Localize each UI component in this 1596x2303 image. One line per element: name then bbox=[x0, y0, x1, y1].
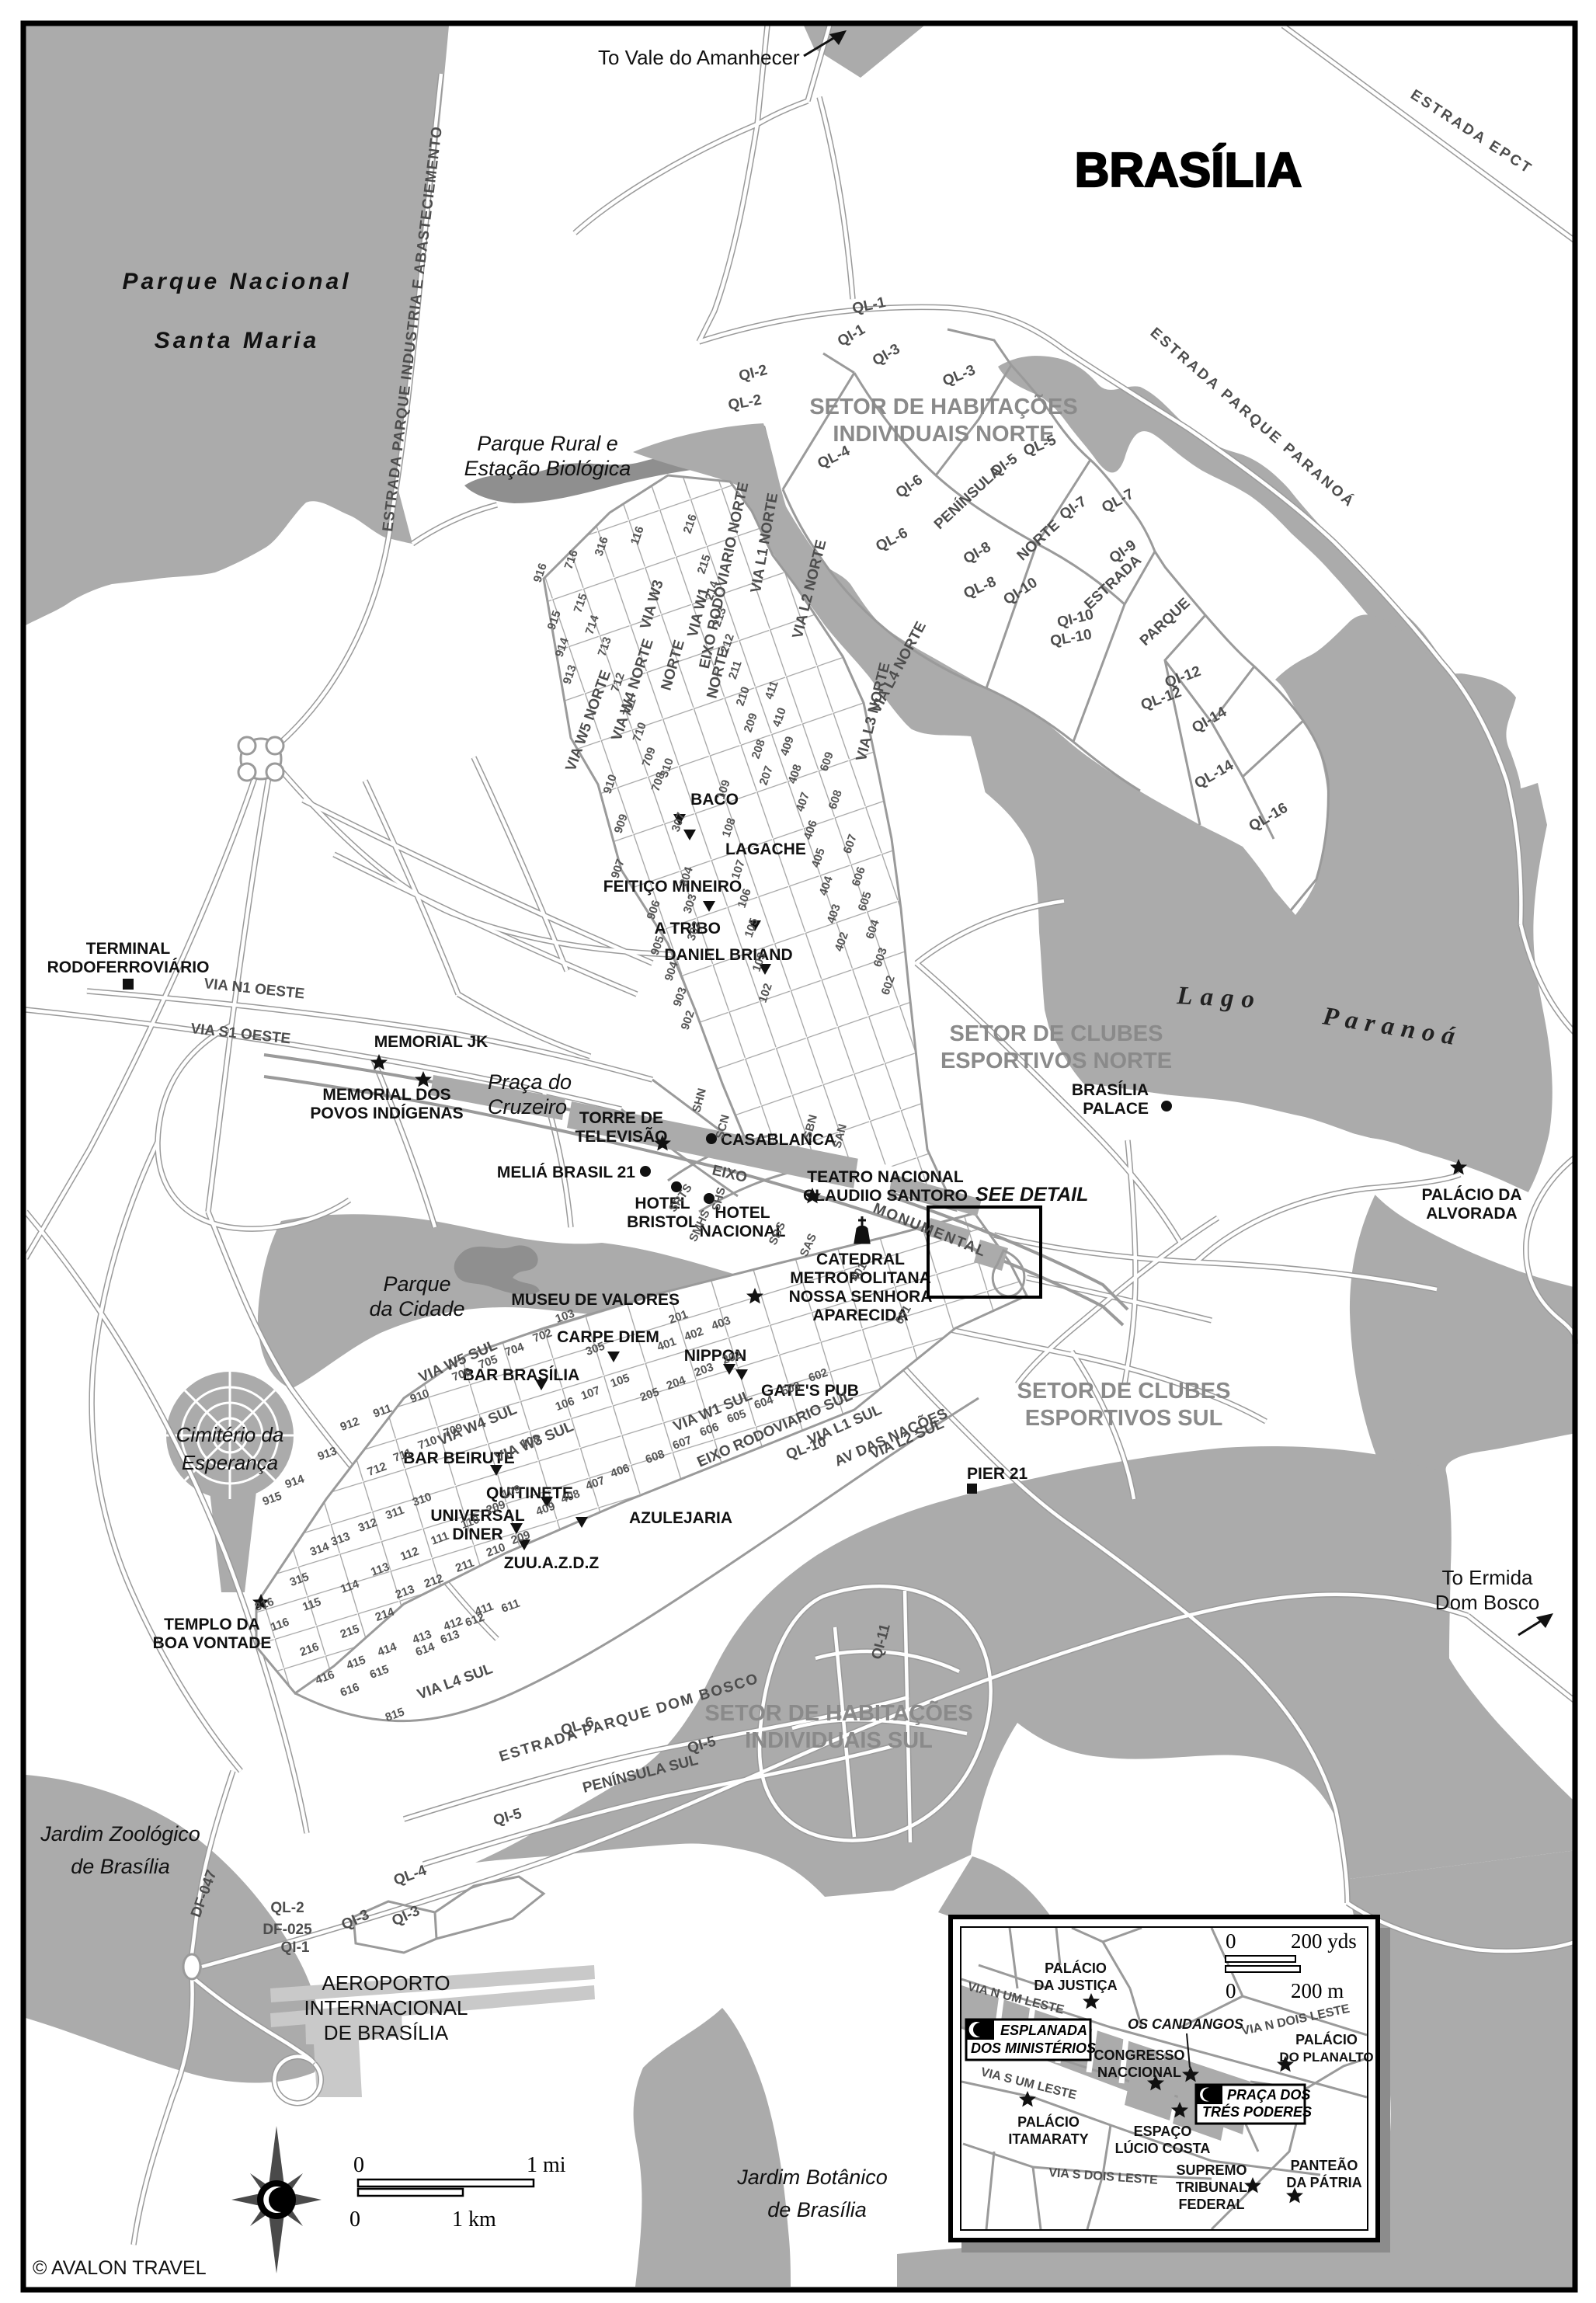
svg-text:BRASÍLIA: BRASÍLIA bbox=[1075, 144, 1302, 197]
svg-text:ESPORTIVOS NORTE: ESPORTIVOS NORTE bbox=[941, 1049, 1172, 1073]
svg-text:CLAUDIIO SANTORO: CLAUDIIO SANTORO bbox=[803, 1187, 968, 1205]
svg-text:QI-1: QI-1 bbox=[281, 1939, 310, 1956]
svg-text:0: 0 bbox=[349, 2207, 360, 2232]
svg-text:TERMINAL: TERMINAL bbox=[86, 940, 171, 958]
svg-text:SETOR DE HABITAÇÕES: SETOR DE HABITAÇÕES bbox=[704, 1699, 972, 1726]
svg-text:Praça do: Praça do bbox=[488, 1070, 572, 1094]
svg-text:DE BRASÍLIA: DE BRASÍLIA bbox=[324, 2021, 449, 2044]
svg-text:SETOR DE CLUBES: SETOR DE CLUBES bbox=[1017, 1379, 1230, 1404]
svg-text:SEE DETAIL: SEE DETAIL bbox=[975, 1184, 1088, 1205]
svg-text:Dom Bosco: Dom Bosco bbox=[1435, 1591, 1539, 1614]
svg-text:0: 0 bbox=[353, 2153, 364, 2177]
svg-text:Parque Rural e: Parque Rural e bbox=[477, 432, 618, 455]
svg-text:CARPE DIEM: CARPE DIEM bbox=[557, 1328, 659, 1346]
svg-text:MUSEU DE VALORES: MUSEU DE VALORES bbox=[511, 1291, 680, 1309]
svg-text:BACO: BACO bbox=[690, 791, 739, 809]
svg-text:RODOFERROVIÁRIO: RODOFERROVIÁRIO bbox=[47, 958, 210, 976]
svg-text:BRISTOL: BRISTOL bbox=[627, 1213, 698, 1231]
svg-text:PRAÇA DOS: PRAÇA DOS bbox=[1227, 2087, 1310, 2103]
svg-text:BOA VONTADE: BOA VONTADE bbox=[153, 1634, 272, 1652]
svg-text:ESPORTIVOS SUL: ESPORTIVOS SUL bbox=[1025, 1406, 1223, 1431]
svg-text:INTERNACIONAL: INTERNACIONAL bbox=[304, 1996, 468, 2019]
svg-text:TEATRO NACIONAL: TEATRO NACIONAL bbox=[807, 1168, 964, 1186]
svg-text:SUPREMO: SUPREMO bbox=[1176, 2162, 1247, 2178]
svg-text:NOSSA SENHORA: NOSSA SENHORA bbox=[789, 1288, 933, 1306]
svg-text:© AVALON TRAVEL: © AVALON TRAVEL bbox=[33, 2257, 207, 2279]
svg-text:DINER: DINER bbox=[452, 1525, 502, 1543]
svg-text:APARECIDA: APARECIDA bbox=[812, 1306, 908, 1324]
svg-text:ITAMARATY: ITAMARATY bbox=[1008, 2131, 1088, 2147]
svg-text:SETOR DE CLUBES: SETOR DE CLUBES bbox=[949, 1021, 1163, 1046]
svg-text:ALVORADA: ALVORADA bbox=[1426, 1205, 1517, 1223]
svg-text:PALÁCIO: PALÁCIO bbox=[1017, 2113, 1080, 2130]
svg-text:de Brasília: de Brasília bbox=[767, 2198, 867, 2221]
svg-text:Estação Biológica: Estação Biológica bbox=[464, 457, 631, 480]
svg-text:OS CANDANGOS: OS CANDANGOS bbox=[1128, 2016, 1243, 2032]
svg-text:TEMPLO DA: TEMPLO DA bbox=[164, 1616, 260, 1633]
svg-text:da Cidade: da Cidade bbox=[369, 1297, 464, 1320]
svg-text:Esperança: Esperança bbox=[182, 1451, 278, 1474]
svg-text:Jardim Zoológico: Jardim Zoológico bbox=[40, 1822, 200, 1846]
svg-text:200 m: 200 m bbox=[1291, 1979, 1344, 2002]
svg-text:PALÁCIO: PALÁCIO bbox=[1295, 2031, 1358, 2047]
svg-text:DF-025: DF-025 bbox=[263, 1922, 312, 1938]
svg-text:DO PLANALTO: DO PLANALTO bbox=[1279, 2050, 1373, 2065]
svg-text:To Vale do Amanhecer: To Vale do Amanhecer bbox=[598, 46, 800, 69]
svg-text:PANTEÃO: PANTEÃO bbox=[1291, 2157, 1358, 2173]
svg-text:1 km: 1 km bbox=[452, 2207, 496, 2232]
svg-text:LAGACHE: LAGACHE bbox=[725, 840, 806, 858]
svg-text:ZUU.A.Z.D.Z: ZUU.A.Z.D.Z bbox=[504, 1554, 600, 1572]
svg-text:PALÁCIO DA: PALÁCIO DA bbox=[1421, 1186, 1521, 1204]
svg-text:SETOR DE HABITAÇÕES: SETOR DE HABITAÇÕES bbox=[809, 393, 1077, 419]
svg-text:Cimitério da: Cimitério da bbox=[176, 1423, 284, 1446]
svg-text:Parque: Parque bbox=[383, 1272, 450, 1296]
svg-text:0: 0 bbox=[1226, 1979, 1236, 2002]
svg-text:200 yds: 200 yds bbox=[1291, 1929, 1357, 1953]
svg-text:ESPAÇO: ESPAÇO bbox=[1134, 2124, 1192, 2139]
svg-text:AZULEJARIA: AZULEJARIA bbox=[629, 1509, 732, 1527]
svg-text:DA PÁTRIA: DA PÁTRIA bbox=[1286, 2174, 1361, 2190]
svg-text:MELIÁ BRASIL 21: MELIÁ BRASIL 21 bbox=[497, 1164, 635, 1181]
svg-text:MEMORIAL DOS: MEMORIAL DOS bbox=[322, 1086, 450, 1104]
svg-text:AEROPORTO: AEROPORTO bbox=[322, 1971, 450, 1995]
svg-text:CONGRESSO: CONGRESSO bbox=[1094, 2047, 1184, 2063]
svg-text:TRIBUNAL: TRIBUNAL bbox=[1176, 2180, 1247, 2195]
svg-text:DANIEL BRIAND: DANIEL BRIAND bbox=[664, 946, 792, 964]
svg-text:POVOS INDÍGENAS: POVOS INDÍGENAS bbox=[310, 1105, 463, 1122]
svg-text:PIER 21: PIER 21 bbox=[967, 1465, 1028, 1483]
svg-text:BRASÍLIA: BRASÍLIA bbox=[1072, 1081, 1149, 1099]
svg-text:TRÉS PODERES: TRÉS PODERES bbox=[1202, 2103, 1312, 2120]
svg-text:QL-2: QL-2 bbox=[270, 1900, 304, 1916]
svg-text:1 mi: 1 mi bbox=[527, 2153, 566, 2177]
svg-text:Parque Nacional: Parque Nacional bbox=[122, 269, 351, 294]
svg-text:MEMORIAL JK: MEMORIAL JK bbox=[374, 1033, 489, 1051]
svg-text:TELEVISÃO: TELEVISÃO bbox=[575, 1128, 667, 1146]
svg-text:0: 0 bbox=[1226, 1929, 1236, 1953]
svg-text:LÚCIO COSTA: LÚCIO COSTA bbox=[1115, 2140, 1211, 2156]
svg-text:To Ermida: To Ermida bbox=[1441, 1566, 1533, 1589]
svg-text:DOS MINISTÉRIOS: DOS MINISTÉRIOS bbox=[971, 2040, 1096, 2056]
svg-text:Santa Maria: Santa Maria bbox=[155, 328, 319, 353]
svg-text:ESPLANADA: ESPLANADA bbox=[1000, 2023, 1087, 2038]
svg-text:FEITIÇO MINEIRO: FEITIÇO MINEIRO bbox=[603, 878, 742, 896]
svg-text:INDIVIDUAIS SUL: INDIVIDUAIS SUL bbox=[745, 1728, 933, 1753]
svg-text:CASABLANCA: CASABLANCA bbox=[721, 1131, 836, 1149]
svg-text:NACCIONAL: NACCIONAL bbox=[1097, 2065, 1181, 2080]
svg-text:FEDERAL: FEDERAL bbox=[1179, 2197, 1245, 2212]
svg-text:de Brasília: de Brasília bbox=[71, 1855, 170, 1878]
svg-text:PALACE: PALACE bbox=[1083, 1100, 1149, 1118]
svg-text:DA JUSTIÇA: DA JUSTIÇA bbox=[1034, 1978, 1117, 1993]
svg-text:PALÁCIO: PALÁCIO bbox=[1045, 1960, 1107, 1976]
svg-text:TORRE DE: TORRE DE bbox=[579, 1109, 663, 1127]
svg-text:Cruzeiro: Cruzeiro bbox=[488, 1095, 567, 1118]
svg-text:Lago: Lago bbox=[1176, 982, 1263, 1014]
svg-text:Jardim Botânico: Jardim Botânico bbox=[736, 2166, 888, 2189]
svg-text:INDIVIDUAIS NORTE: INDIVIDUAIS NORTE bbox=[833, 422, 1054, 447]
